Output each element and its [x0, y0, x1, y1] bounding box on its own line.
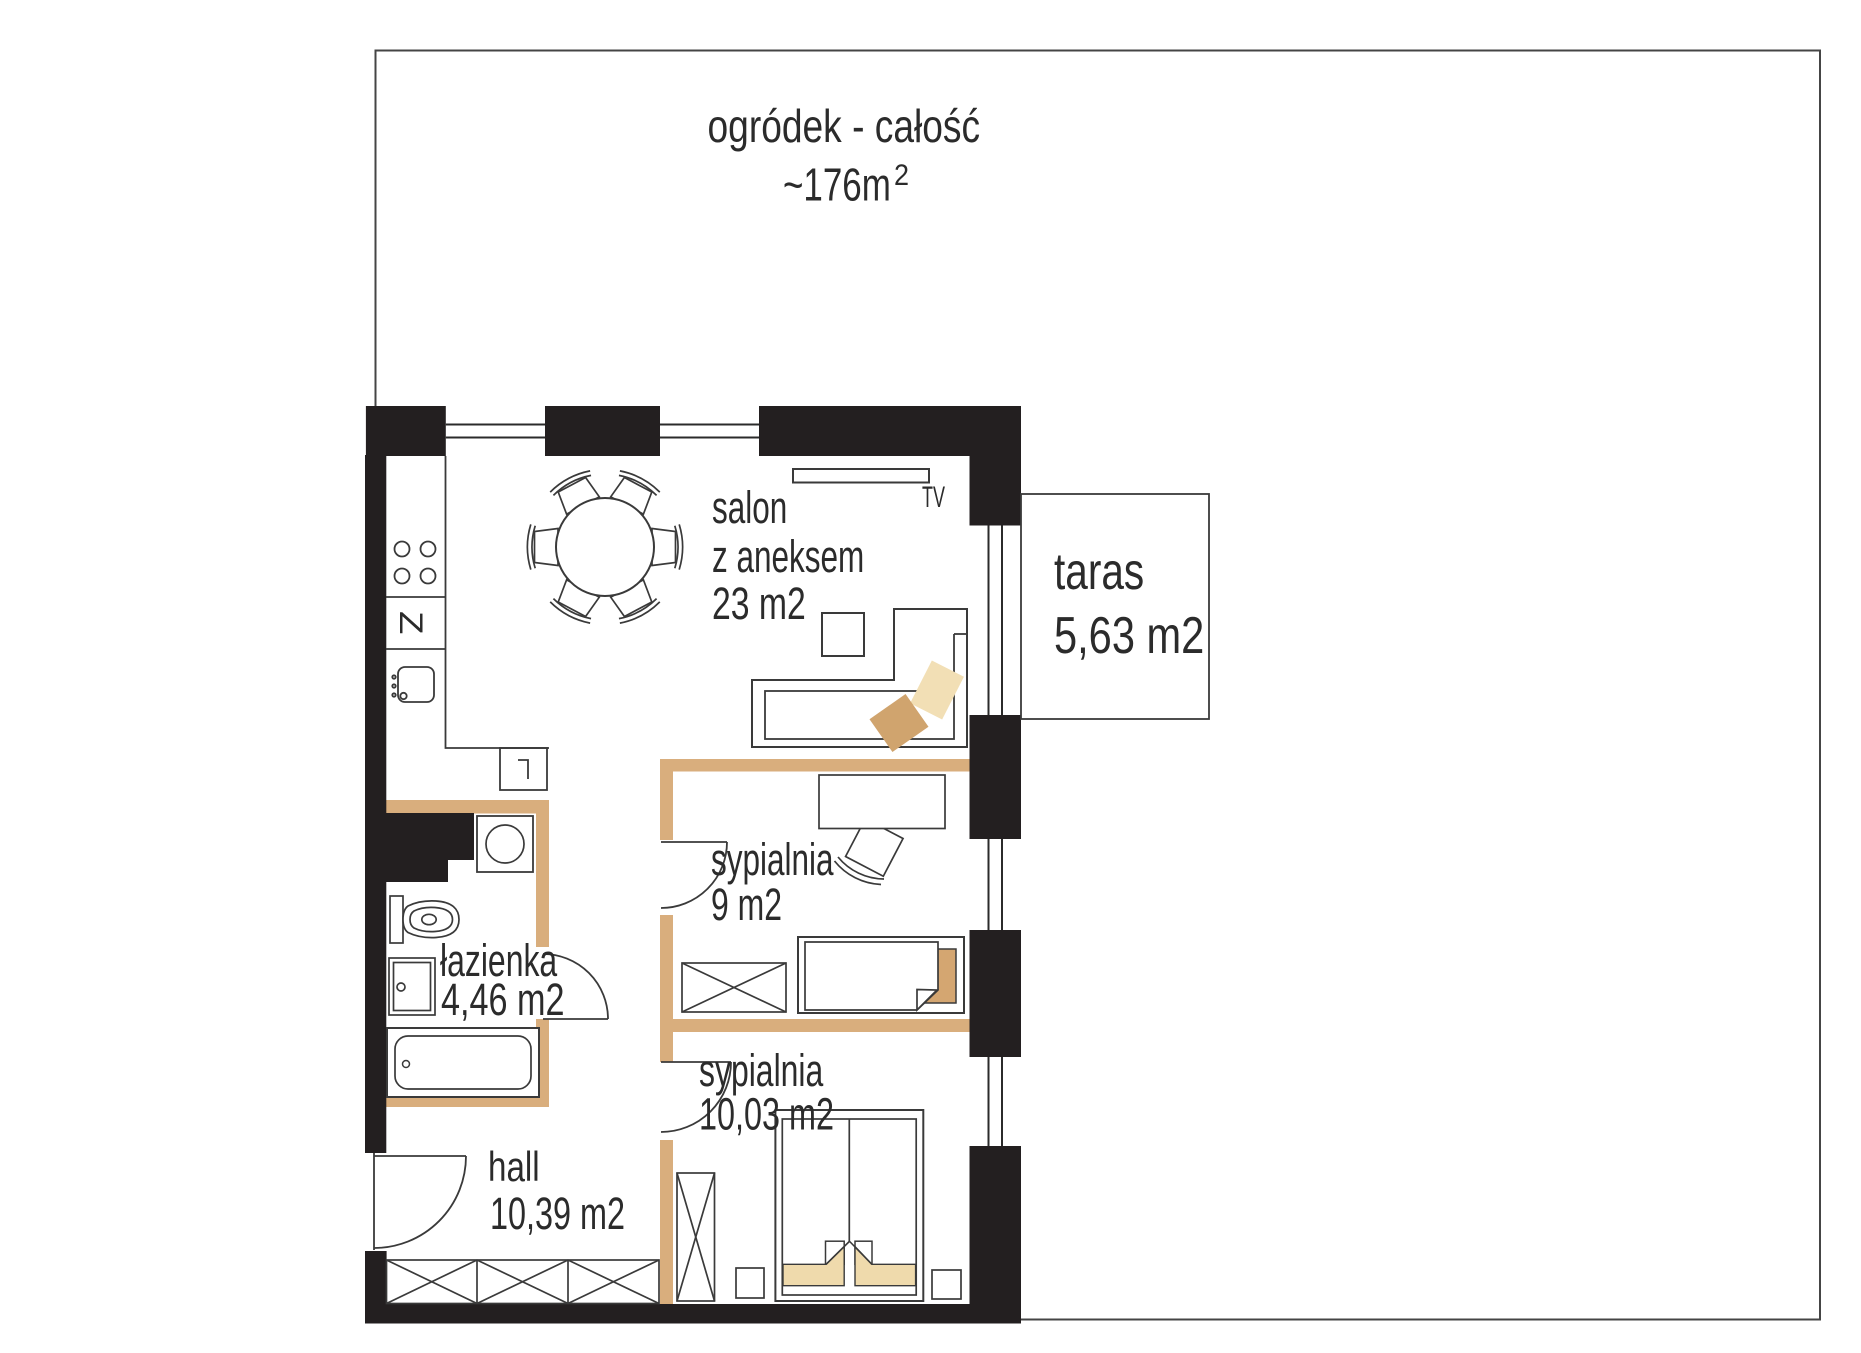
- svg-text:9 m2: 9 m2: [711, 881, 782, 931]
- svg-text:sypialnia: sypialnia: [699, 1047, 824, 1097]
- svg-text:hall: hall: [488, 1144, 540, 1191]
- svg-text:2: 2: [894, 159, 909, 193]
- svg-text:5,63 m2: 5,63 m2: [1054, 606, 1204, 665]
- svg-text:Z: Z: [393, 611, 429, 634]
- svg-text:TV: TV: [922, 482, 945, 515]
- svg-text:ogródek - całość: ogródek - całość: [708, 100, 981, 152]
- svg-text:23 m2: 23 m2: [712, 579, 806, 629]
- svg-text:4,46 m2: 4,46 m2: [441, 976, 565, 1026]
- svg-text:salon: salon: [712, 484, 787, 534]
- svg-text:taras: taras: [1054, 542, 1144, 600]
- svg-text:sypialnia: sypialnia: [711, 836, 834, 886]
- svg-text:10,39 m2: 10,39 m2: [490, 1190, 625, 1239]
- svg-text:10,03 m2: 10,03 m2: [699, 1090, 834, 1139]
- svg-text:~176m: ~176m: [783, 159, 891, 211]
- svg-text:z aneksem: z aneksem: [712, 533, 864, 583]
